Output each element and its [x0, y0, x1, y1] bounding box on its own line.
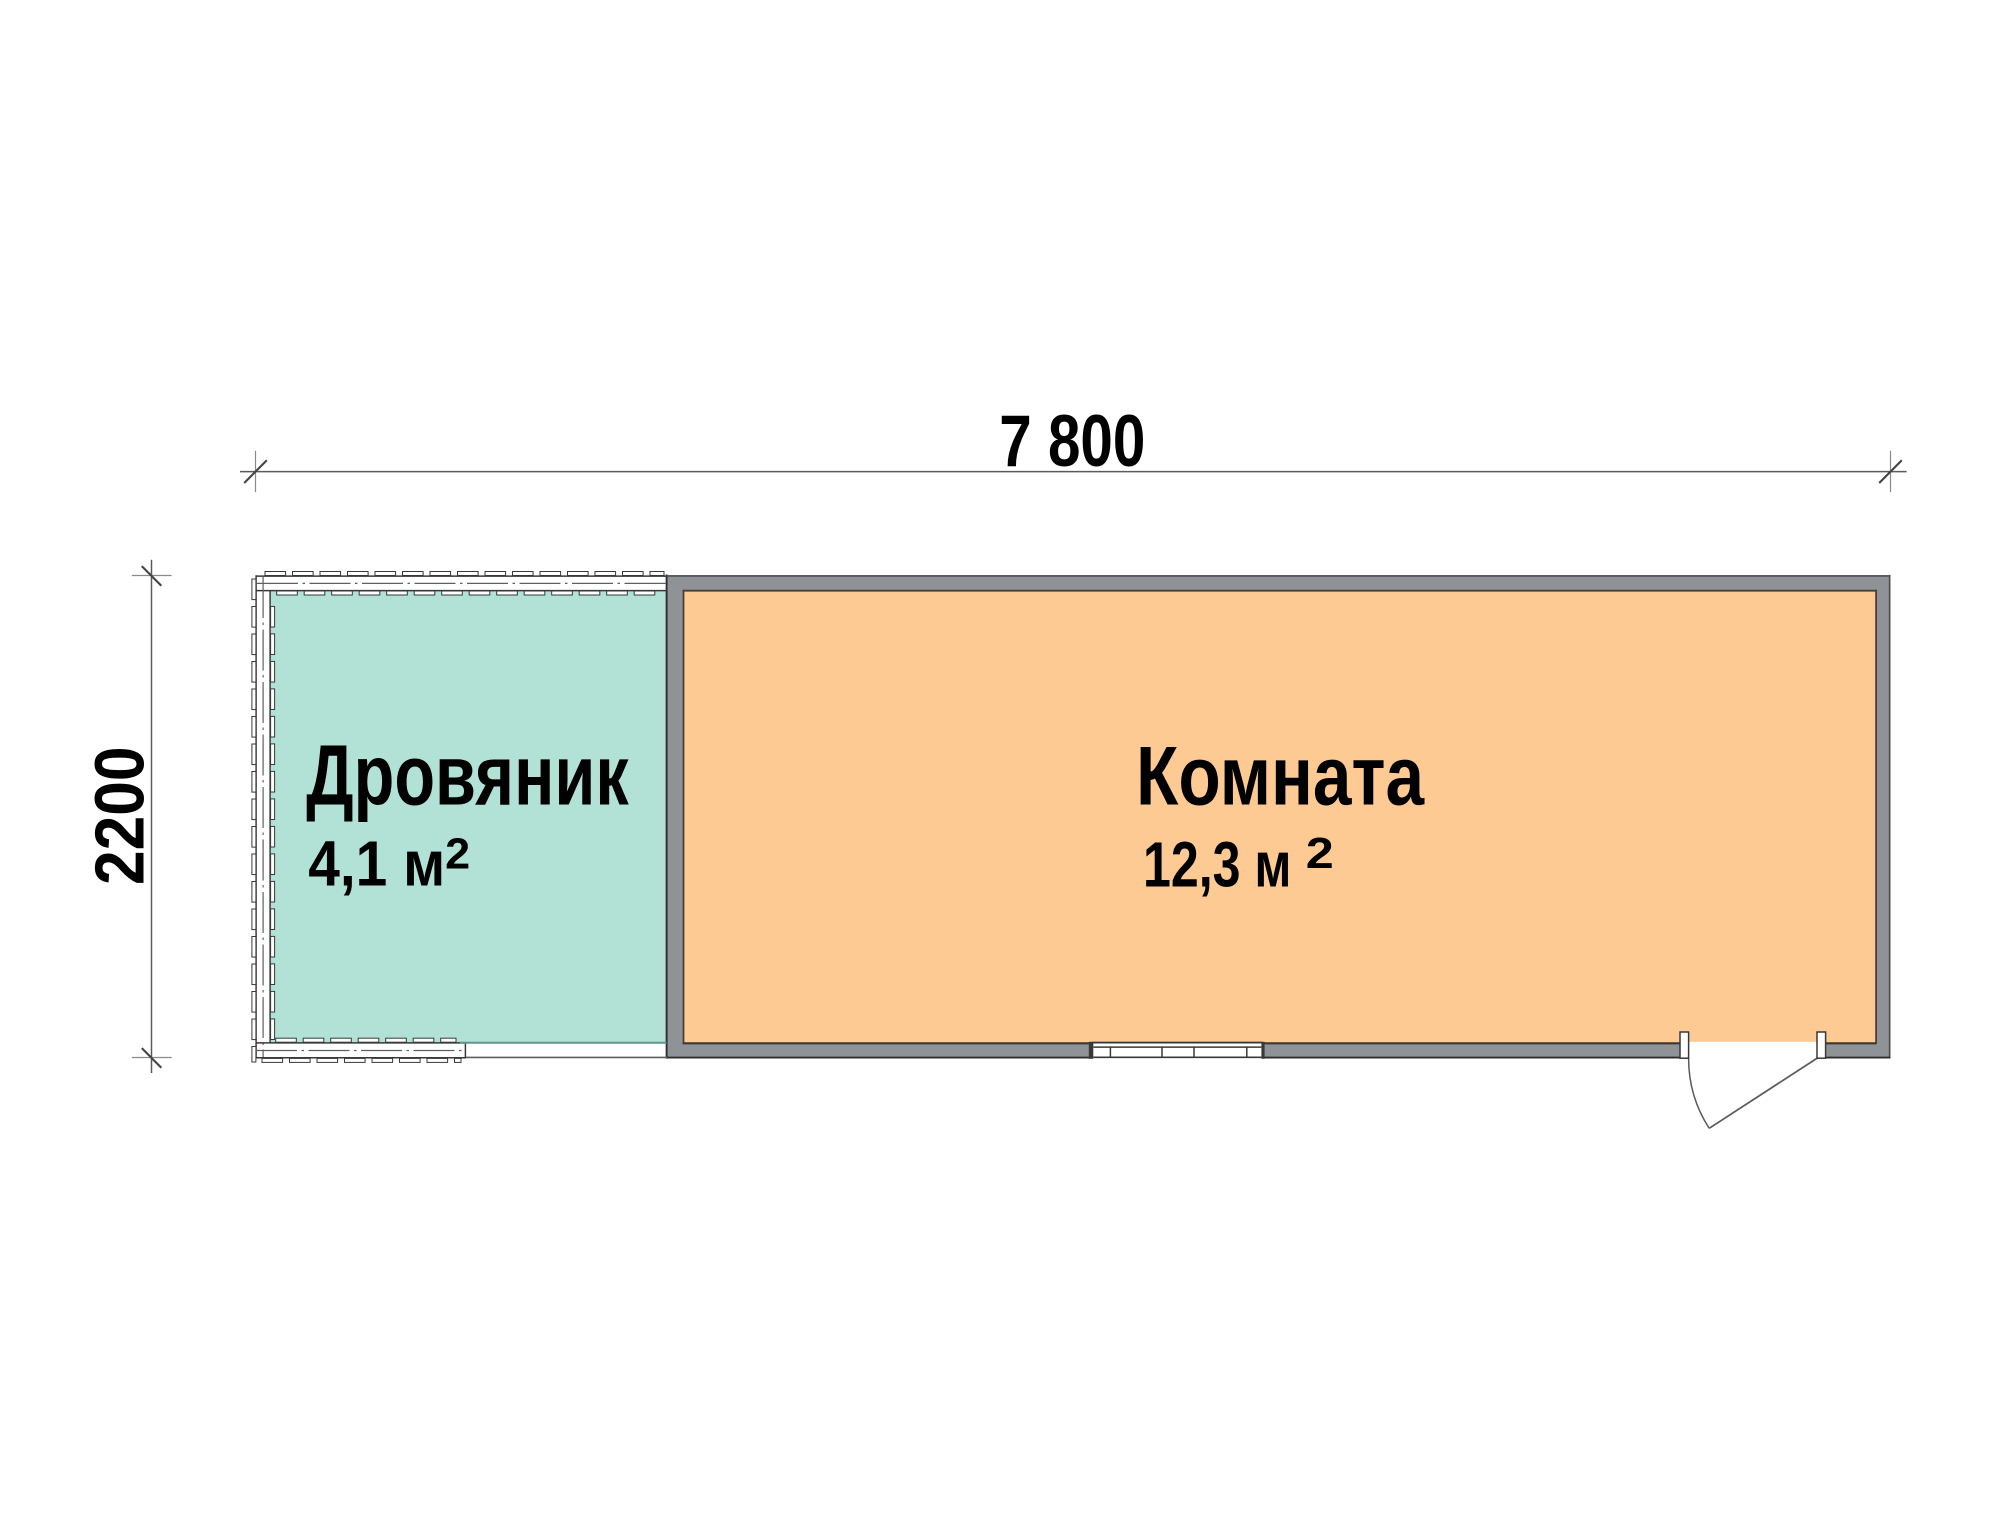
svg-text:Дровяник: Дровяник [306, 729, 629, 824]
svg-text:2: 2 [1306, 829, 1334, 878]
svg-text:2: 2 [445, 830, 470, 878]
svg-text:7 800: 7 800 [999, 401, 1145, 482]
svg-text:Комната: Комната [1136, 728, 1425, 822]
svg-text:4,1 м: 4,1 м [308, 829, 445, 900]
svg-text:2200: 2200 [81, 747, 159, 886]
svg-text:12,3 м: 12,3 м [1143, 830, 1292, 901]
